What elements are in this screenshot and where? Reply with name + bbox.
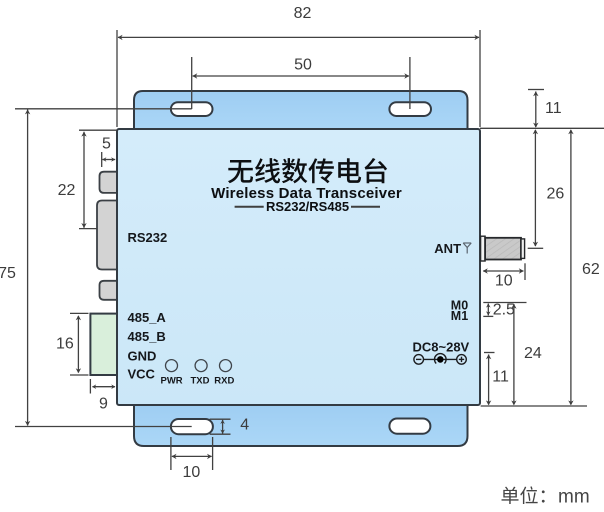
svg-text:62: 62 xyxy=(582,261,600,278)
svg-text:82: 82 xyxy=(294,5,312,22)
svg-text:M1: M1 xyxy=(451,309,468,323)
svg-text:11: 11 xyxy=(545,100,562,117)
svg-text:5: 5 xyxy=(102,136,111,153)
svg-text:26: 26 xyxy=(547,185,565,202)
svg-text:RXD: RXD xyxy=(214,375,234,386)
svg-text:2.5: 2.5 xyxy=(493,302,515,319)
svg-text:RS232/RS485: RS232/RS485 xyxy=(266,199,349,214)
svg-text:10: 10 xyxy=(495,273,513,290)
svg-text:11: 11 xyxy=(492,368,509,385)
svg-text:16: 16 xyxy=(56,335,74,352)
svg-text:VCC: VCC xyxy=(128,367,156,382)
svg-text:485_B: 485_B xyxy=(128,329,166,344)
svg-text:50: 50 xyxy=(294,57,312,74)
svg-text:TXD: TXD xyxy=(191,375,210,386)
svg-text:DC8~28V: DC8~28V xyxy=(413,339,470,354)
svg-text:22: 22 xyxy=(58,182,76,199)
svg-text:485_A: 485_A xyxy=(128,310,167,325)
svg-text:RS232: RS232 xyxy=(128,230,168,245)
svg-text:mm: mm xyxy=(558,487,590,508)
svg-text:10: 10 xyxy=(183,464,201,481)
svg-text:24: 24 xyxy=(524,345,542,362)
svg-text:GND: GND xyxy=(128,348,157,363)
svg-text:ANT: ANT xyxy=(434,241,461,256)
svg-text:9: 9 xyxy=(99,396,108,413)
svg-text:PWR: PWR xyxy=(161,375,183,386)
svg-text:4: 4 xyxy=(240,417,249,434)
svg-text:75: 75 xyxy=(0,265,16,282)
